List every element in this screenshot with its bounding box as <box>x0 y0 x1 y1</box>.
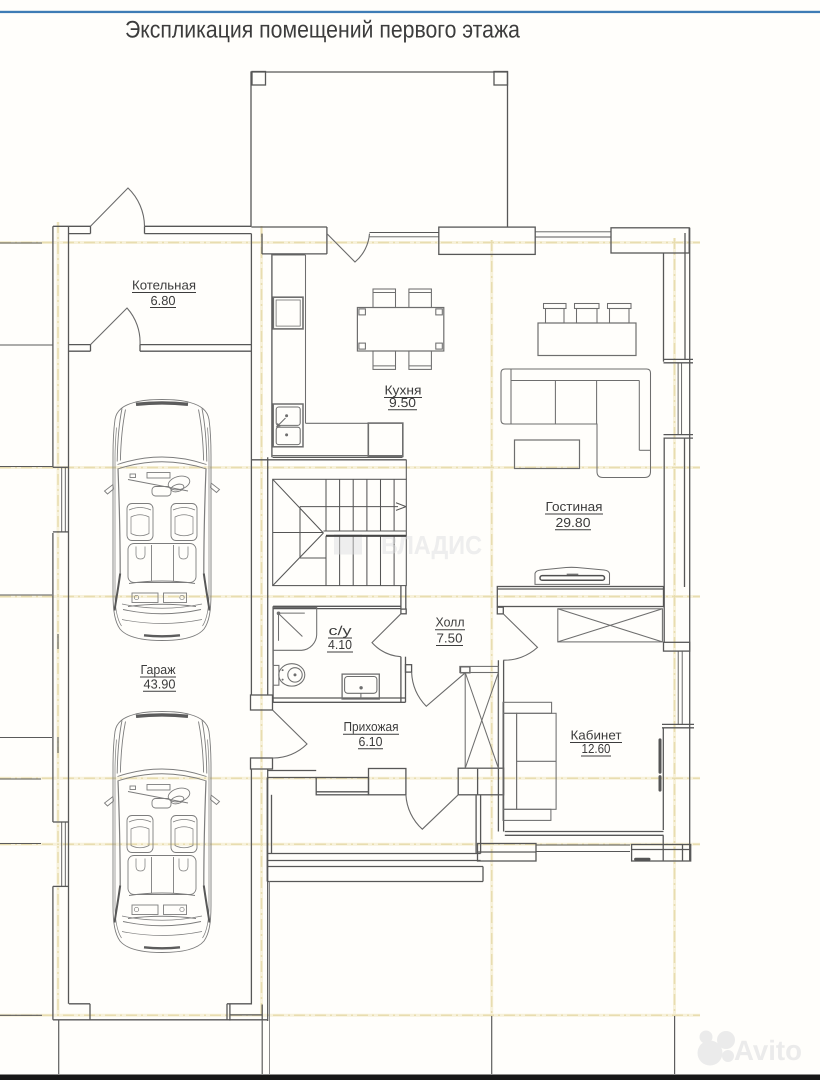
svg-text:ВЛАДИС: ВЛАДИС <box>381 530 482 560</box>
svg-text:43.90: 43.90 <box>144 677 176 692</box>
svg-text:4.10: 4.10 <box>328 637 352 652</box>
svg-text:Экспликация помещений первого: Экспликация помещений первого этажа <box>125 17 521 44</box>
svg-text:с/у: с/у <box>329 623 353 638</box>
svg-text:Прихожая: Прихожая <box>344 719 399 734</box>
svg-text:29.80: 29.80 <box>556 515 591 530</box>
svg-text:6.10: 6.10 <box>359 734 383 749</box>
svg-text:6.80: 6.80 <box>151 293 176 308</box>
svg-text:Гараж: Гараж <box>141 662 176 677</box>
svg-text:Холл: Холл <box>436 615 465 630</box>
svg-text:Гостиная: Гостиная <box>546 499 603 514</box>
svg-text:Avito: Avito <box>734 1035 802 1066</box>
svg-text:Котельная: Котельная <box>132 278 196 293</box>
svg-text:7.50: 7.50 <box>437 631 463 646</box>
svg-text:12.60: 12.60 <box>582 741 611 756</box>
